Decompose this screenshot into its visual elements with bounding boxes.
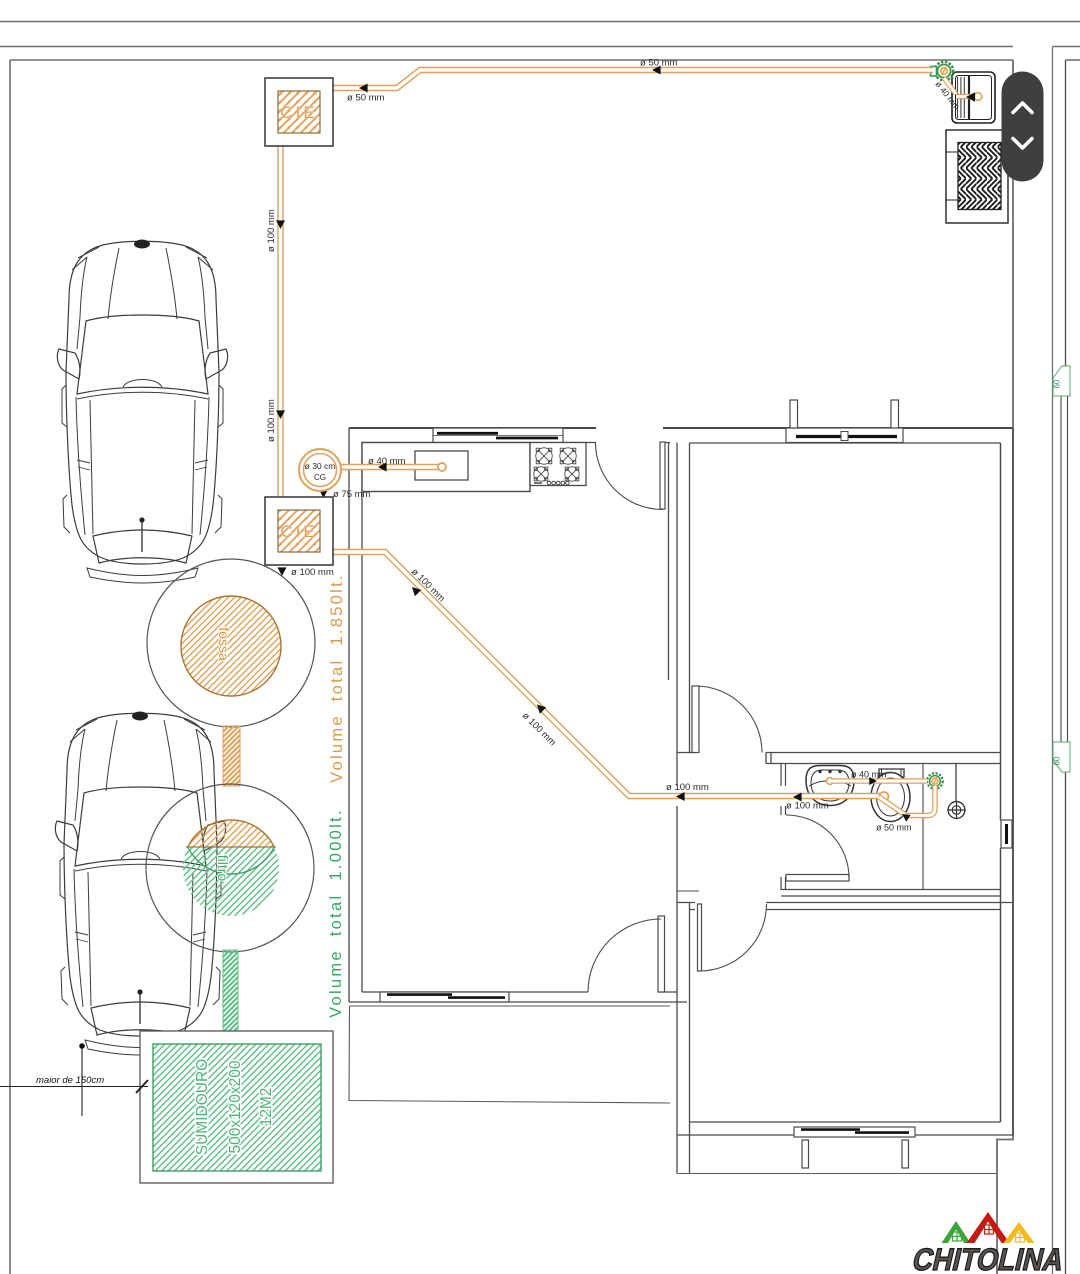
svg-text:ø 100 mm: ø 100 mm (266, 399, 277, 442)
svg-text:CIE: CIE (280, 103, 317, 122)
svg-text:60: 60 (1053, 756, 1062, 765)
svg-text:CHITOLINA: CHITOLINA (909, 1242, 1067, 1274)
svg-text:CIE: CIE (280, 522, 317, 541)
svg-text:12M2: 12M2 (258, 1088, 275, 1127)
svg-text:ø 75 mm: ø 75 mm (333, 489, 371, 500)
svg-text:ø 40 mm: ø 40 mm (851, 770, 887, 780)
svg-text:Volume total 1.000lt.: Volume total 1.000lt. (327, 808, 345, 1018)
svg-text:Volume total 1.850lt.: Volume total 1.850lt. (328, 573, 346, 783)
svg-text:60: 60 (1053, 379, 1062, 388)
svg-text:CG: CG (314, 473, 326, 482)
svg-text:filtro: filtro (215, 855, 231, 882)
svg-text:maior de 150cm: maior de 150cm (36, 1075, 104, 1086)
svg-text:ø 50 mm: ø 50 mm (876, 823, 912, 833)
svg-text:ø 30 cm: ø 30 cm (305, 461, 336, 471)
svg-text:ø 40 mm: ø 40 mm (368, 456, 406, 467)
svg-text:500x120x200: 500x120x200 (227, 1060, 244, 1153)
svg-text:ø 50 mm: ø 50 mm (640, 58, 678, 69)
svg-text:ø 50 mm: ø 50 mm (347, 93, 385, 104)
svg-text:ø 100 mm: ø 100 mm (266, 209, 277, 252)
svg-text:SUMIDOURO: SUMIDOURO (194, 1059, 211, 1155)
svg-text:fossa: fossa (216, 627, 232, 661)
svg-text:ø 100 mm: ø 100 mm (666, 782, 709, 793)
svg-text:ø 100 mm: ø 100 mm (786, 801, 829, 812)
